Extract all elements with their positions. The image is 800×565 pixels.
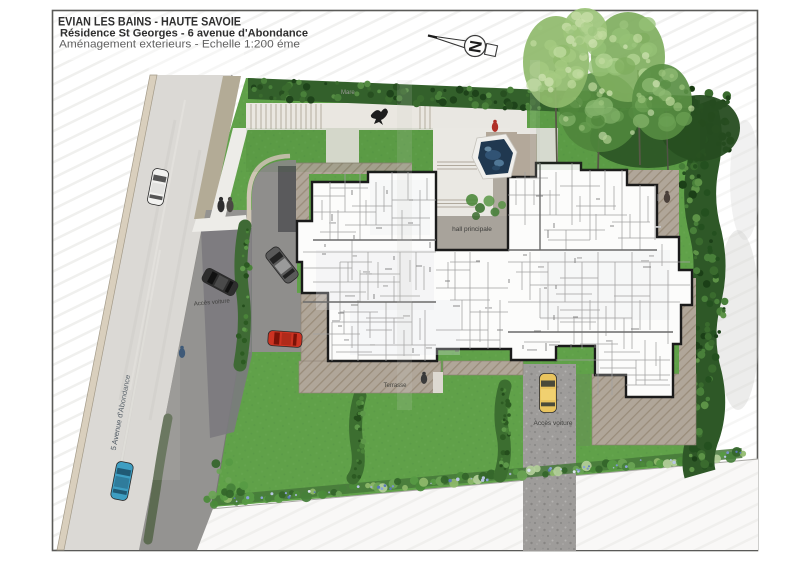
svg-text:Aménagement exterieurs - Echel: Aménagement exterieurs - Echelle 1:200 é… <box>59 39 300 51</box>
svg-text:hall principale: hall principale <box>452 226 492 233</box>
svg-text:Terrasse: Terrasse <box>383 383 407 389</box>
svg-text:Mare: Mare <box>341 90 355 96</box>
svg-text:Accès voiture: Accès voiture <box>533 420 572 427</box>
